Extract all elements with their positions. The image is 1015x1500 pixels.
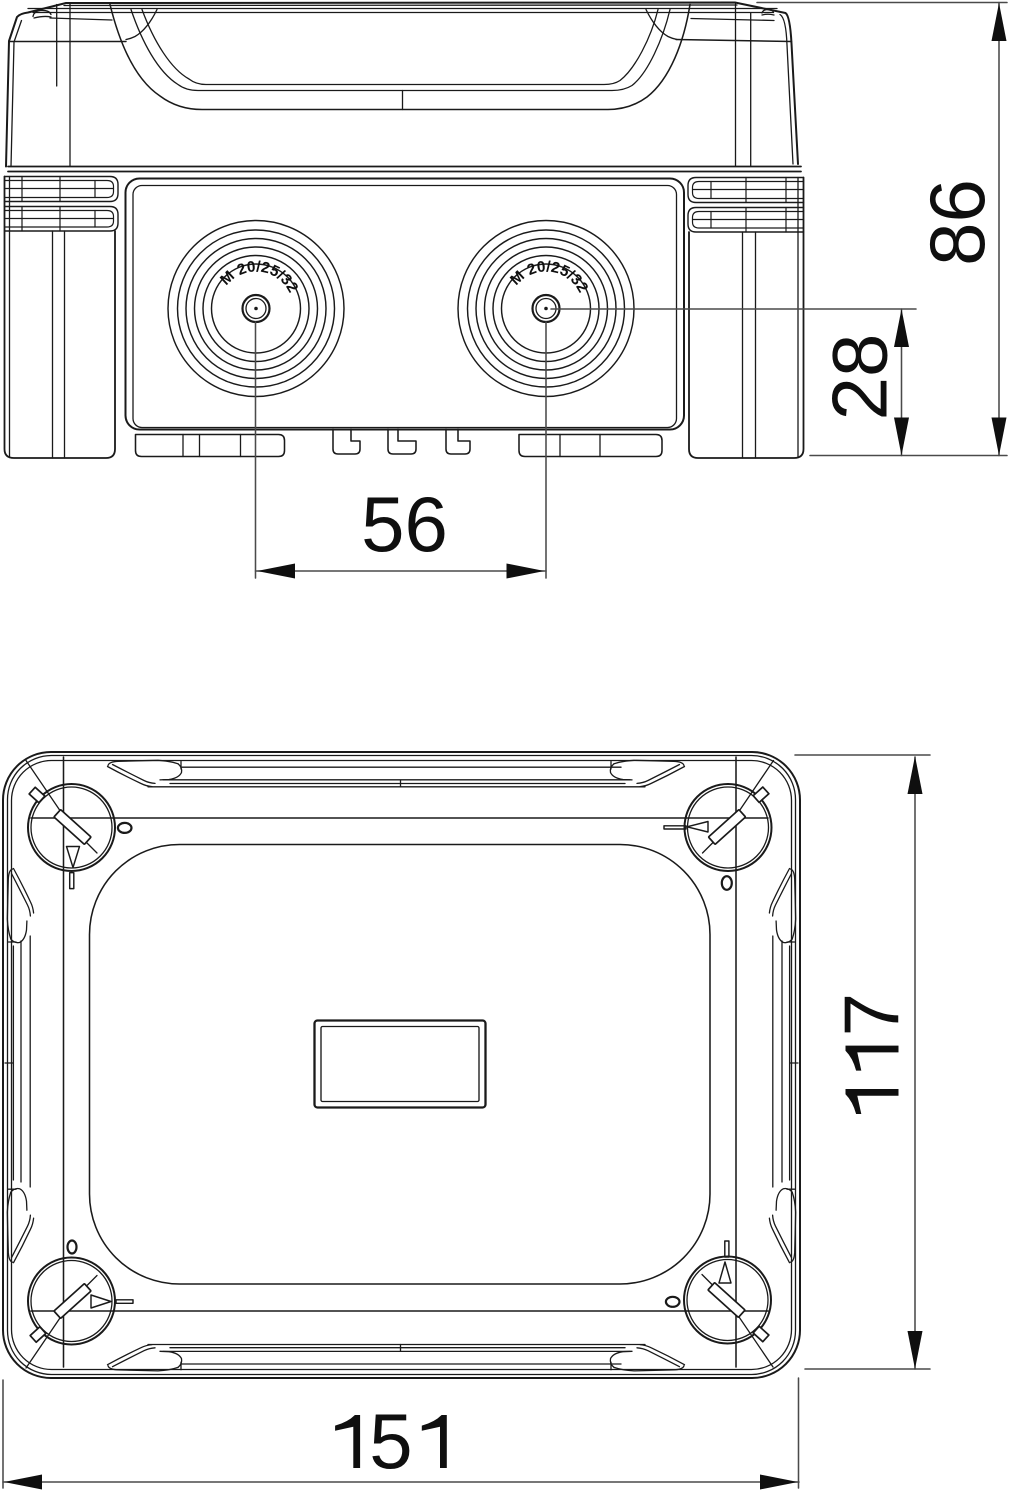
svg-text:7: 7 (828, 993, 916, 1036)
svg-text:56: 56 (361, 480, 448, 568)
svg-text:5: 5 (369, 1397, 412, 1485)
svg-text:M 20/25/32: M 20/25/32 (507, 258, 591, 295)
svg-text:28: 28 (816, 334, 904, 421)
svg-text:M 20/25/32: M 20/25/32 (217, 258, 301, 295)
svg-text:86: 86 (913, 179, 1001, 266)
